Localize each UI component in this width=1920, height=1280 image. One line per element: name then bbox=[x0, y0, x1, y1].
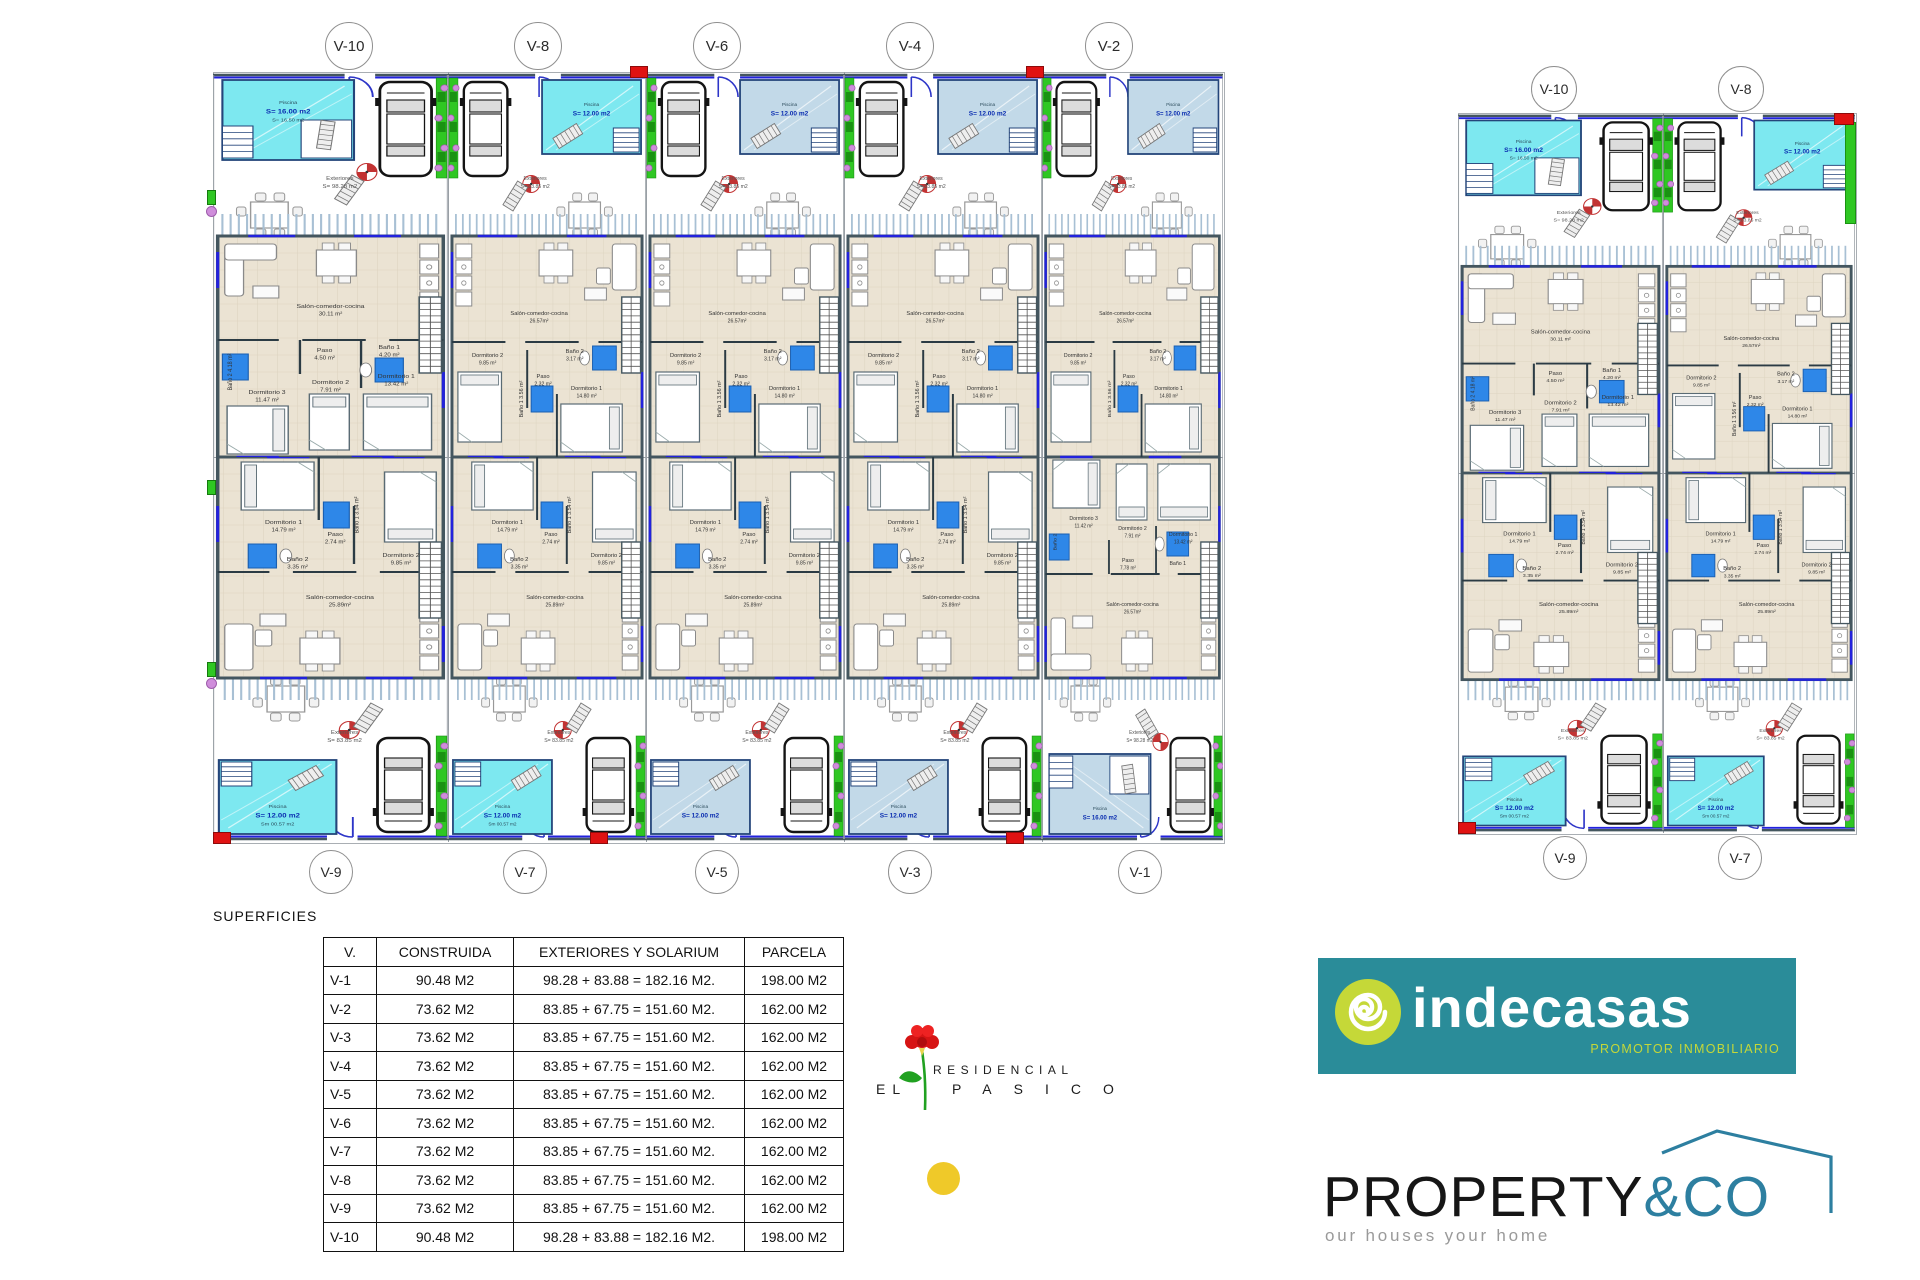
svg-text:Dormitorio 2: Dormitorio 2 bbox=[1686, 376, 1716, 382]
unit-plan-V-10: Salón-comedor-cocina30.11 m²Paso4.50 m²B… bbox=[213, 72, 448, 457]
col-header: PARCELA bbox=[745, 938, 844, 967]
unit-label-V-3: V-3 bbox=[888, 850, 932, 894]
svg-text:Paso: Paso bbox=[734, 374, 747, 380]
indecasas-spiral-icon bbox=[1332, 976, 1404, 1048]
table-cell: 83.85 + 67.75 = 151.60 M2. bbox=[514, 1137, 745, 1166]
svg-text:3.35 m²: 3.35 m² bbox=[287, 565, 308, 570]
svg-text:S= 12.00 m2: S= 12.00 m2 bbox=[255, 811, 300, 819]
svg-text:26.57m²: 26.57m² bbox=[1742, 343, 1761, 349]
svg-text:25.89m²: 25.89m² bbox=[546, 602, 565, 608]
svg-text:4.50 m²: 4.50 m² bbox=[314, 356, 335, 361]
svg-text:Baño 2: Baño 2 bbox=[1522, 566, 1541, 572]
table-cell: 98.28 + 83.88 = 182.16 M2. bbox=[514, 1223, 745, 1252]
table-cell: V-1 bbox=[324, 966, 377, 995]
table-cell: 162.00 M2 bbox=[745, 1194, 844, 1223]
svg-text:Baño 1 3.54 m²: Baño 1 3.54 m² bbox=[567, 496, 573, 533]
svg-text:Paso: Paso bbox=[536, 374, 549, 380]
table-cell: 73.62 M2 bbox=[377, 1194, 514, 1223]
table-row: V-473.62 M283.85 + 67.75 = 151.60 M2.162… bbox=[324, 1052, 844, 1081]
svg-text:Dormitorio 2: Dormitorio 2 bbox=[1064, 353, 1093, 359]
table-cell: 73.62 M2 bbox=[377, 1052, 514, 1081]
svg-text:S= 83.85 m2: S= 83.85 m2 bbox=[742, 738, 771, 744]
table-cell: 198.00 M2 bbox=[745, 1223, 844, 1252]
svg-text:Paso: Paso bbox=[1558, 543, 1572, 549]
svg-text:Piscina: Piscina bbox=[495, 804, 511, 810]
svg-text:S= 12.00 m2: S= 12.00 m2 bbox=[969, 110, 1007, 117]
table-cell: 83.85 + 67.75 = 151.60 M2. bbox=[514, 1023, 745, 1052]
svg-text:Dormitorio 2: Dormitorio 2 bbox=[789, 553, 820, 559]
table-cell: 162.00 M2 bbox=[745, 1052, 844, 1081]
table-cell: V-9 bbox=[324, 1194, 377, 1223]
property-co-logo: PROPERTY&CO our houses your home bbox=[1323, 1160, 1843, 1250]
svg-text:Paso: Paso bbox=[1122, 558, 1134, 564]
svg-text:Piscina: Piscina bbox=[1166, 102, 1180, 107]
svg-text:Dormitorio 1: Dormitorio 1 bbox=[571, 386, 602, 392]
svg-text:9.85 m²: 9.85 m² bbox=[796, 560, 814, 566]
table-cell: 162.00 M2 bbox=[745, 995, 844, 1024]
svg-text:3.35 m²: 3.35 m² bbox=[1724, 573, 1741, 579]
svg-text:Salón-comedor-cocina: Salón-comedor-cocina bbox=[708, 311, 766, 317]
svg-text:9.85 m²: 9.85 m² bbox=[1613, 570, 1631, 576]
table-cell: 83.85 + 67.75 = 151.60 M2. bbox=[514, 1080, 745, 1109]
svg-text:Piscina: Piscina bbox=[1506, 797, 1522, 802]
table-row: V-190.48 M298.28 + 83.88 = 182.16 M2.198… bbox=[324, 966, 844, 995]
svg-text:S= 83.85 m2: S= 83.85 m2 bbox=[544, 738, 573, 744]
svg-text:Exteriores: Exteriores bbox=[1736, 210, 1759, 216]
svg-text:Dormitorio 2: Dormitorio 2 bbox=[1544, 401, 1576, 407]
svg-text:S= 12.00 m2: S= 12.00 m2 bbox=[1698, 805, 1735, 812]
svg-text:Baño 1 3.56 m²: Baño 1 3.56 m² bbox=[717, 380, 723, 417]
unit-label-V-8: V-8 bbox=[1718, 66, 1764, 112]
svg-text:Dormitorio 2: Dormitorio 2 bbox=[1118, 526, 1147, 532]
svg-text:Dormitorio 3: Dormitorio 3 bbox=[1069, 516, 1098, 522]
svg-text:4.20 m²: 4.20 m² bbox=[379, 353, 400, 358]
svg-text:S= 16.00 m2: S= 16.00 m2 bbox=[266, 107, 311, 115]
svg-text:13.42 m²: 13.42 m² bbox=[1607, 402, 1628, 408]
svg-text:Paso: Paso bbox=[1749, 395, 1762, 401]
svg-text:Baño 1: Baño 1 bbox=[378, 344, 400, 350]
svg-text:9.85 m²: 9.85 m² bbox=[994, 560, 1012, 566]
svg-text:25.89m²: 25.89m² bbox=[942, 602, 961, 608]
table-row: V-773.62 M283.85 + 67.75 = 151.60 M2.162… bbox=[324, 1137, 844, 1166]
svg-text:Piscina: Piscina bbox=[584, 102, 600, 108]
svg-text:Baño 1 3.54 m²: Baño 1 3.54 m² bbox=[354, 497, 360, 534]
unit-plan-V-7: Salón-comedor-cocina25.89m²Paso2.74 m²Ba… bbox=[1663, 473, 1855, 833]
table-cell: 90.48 M2 bbox=[377, 1223, 514, 1252]
table-cell: 73.62 M2 bbox=[377, 1137, 514, 1166]
unit-label-V-5: V-5 bbox=[695, 850, 739, 894]
svg-text:2.74 m²: 2.74 m² bbox=[740, 539, 758, 545]
hedge-tick bbox=[207, 662, 216, 677]
svg-text:S= 83.85 m2: S= 83.85 m2 bbox=[327, 738, 362, 743]
svg-text:Baño 1 3.56 m²: Baño 1 3.56 m² bbox=[1732, 401, 1738, 436]
svg-text:Salón-comedor-cocina: Salón-comedor-cocina bbox=[510, 311, 568, 317]
svg-text:Dormitorio 2: Dormitorio 2 bbox=[670, 353, 701, 359]
svg-text:2.74 m²: 2.74 m² bbox=[938, 539, 956, 545]
survey-marker bbox=[1458, 822, 1476, 834]
svg-text:Exteriores: Exteriores bbox=[920, 176, 944, 182]
svg-text:Dormitorio 1: Dormitorio 1 bbox=[1154, 386, 1183, 392]
table-cell: 162.00 M2 bbox=[745, 1166, 844, 1195]
unit-plan-V-7: Salón-comedor-cocina25.89m²Paso2.74 m²Ba… bbox=[448, 457, 646, 842]
el-pasico-pasico: PASICO bbox=[952, 1081, 1136, 1097]
table-cell: 162.00 M2 bbox=[745, 1023, 844, 1052]
svg-text:S= 83.85 m2: S= 83.85 m2 bbox=[1108, 184, 1135, 190]
svg-text:Baño 2: Baño 2 bbox=[962, 349, 980, 355]
svg-text:14.79 m²: 14.79 m² bbox=[1509, 539, 1530, 545]
unit-plan-V-3: Salón-comedor-cocina25.89m²Paso2.74 m²Ba… bbox=[844, 457, 1042, 842]
svg-text:2.32 m²: 2.32 m² bbox=[534, 381, 552, 387]
svg-text:9.85 m²: 9.85 m² bbox=[1070, 360, 1086, 366]
svg-text:9.85 m²: 9.85 m² bbox=[479, 360, 497, 366]
table-cell: 73.62 M2 bbox=[377, 1109, 514, 1138]
svg-text:2.74 m²: 2.74 m² bbox=[325, 540, 346, 545]
svg-text:7.91 m²: 7.91 m² bbox=[320, 388, 341, 393]
svg-text:9.85 m²: 9.85 m² bbox=[391, 561, 412, 566]
svg-text:Paso: Paso bbox=[317, 347, 333, 353]
svg-text:2.32 m²: 2.32 m² bbox=[1121, 381, 1137, 387]
svg-text:2.32 m²: 2.32 m² bbox=[930, 381, 948, 387]
svg-text:Sm 00.57 m2: Sm 00.57 m2 bbox=[488, 821, 517, 827]
svg-text:Sm 00.57 m2: Sm 00.57 m2 bbox=[1500, 814, 1530, 819]
table-cell: V-6 bbox=[324, 1109, 377, 1138]
svg-text:Exteriores: Exteriores bbox=[722, 176, 746, 182]
table-row: V-673.62 M283.85 + 67.75 = 151.60 M2.162… bbox=[324, 1109, 844, 1138]
svg-text:S= 98.28 m2: S= 98.28 m2 bbox=[1554, 218, 1584, 224]
svg-text:S= 16.00 m2: S= 16.00 m2 bbox=[1504, 147, 1543, 154]
unit-label-V-6: V-6 bbox=[693, 22, 741, 70]
svg-text:Dormitorio 1: Dormitorio 1 bbox=[1503, 532, 1535, 538]
svg-text:9.85 m²: 9.85 m² bbox=[1808, 570, 1825, 576]
svg-text:Paso: Paso bbox=[940, 532, 953, 538]
svg-text:Dormitorio 1: Dormitorio 1 bbox=[1782, 406, 1812, 412]
svg-text:S= 12.00 m2: S= 12.00 m2 bbox=[771, 110, 809, 117]
svg-text:Baño 1 3.54 m²: Baño 1 3.54 m² bbox=[1581, 510, 1587, 545]
svg-text:Exteriores: Exteriores bbox=[1111, 176, 1133, 182]
svg-text:3.17 m²: 3.17 m² bbox=[1777, 379, 1794, 385]
svg-text:Baño 1 3.56 m²: Baño 1 3.56 m² bbox=[519, 380, 525, 417]
superficies-heading: SUPERFICIES bbox=[213, 908, 317, 924]
svg-text:Exteriores: Exteriores bbox=[547, 730, 571, 736]
unit-plan-V-2: Salón-comedor-cocina26.57m²Paso2.32 m²Ba… bbox=[1042, 72, 1223, 457]
svg-text:Baño 2: Baño 2 bbox=[1053, 533, 1059, 550]
svg-text:Dormitorio 2: Dormitorio 2 bbox=[591, 553, 622, 559]
table-row: V-973.62 M283.85 + 67.75 = 151.60 M2.162… bbox=[324, 1194, 844, 1223]
svg-text:Piscina: Piscina bbox=[1093, 806, 1107, 811]
table-cell: 162.00 M2 bbox=[745, 1080, 844, 1109]
unit-plan-V-5: Salón-comedor-cocina25.89m²Paso2.74 m²Ba… bbox=[646, 457, 844, 842]
svg-text:2.32 m²: 2.32 m² bbox=[732, 381, 750, 387]
svg-text:S= 98.28 m2: S= 98.28 m2 bbox=[1126, 738, 1153, 744]
svg-text:30.11 m²: 30.11 m² bbox=[319, 312, 343, 317]
survey-marker bbox=[590, 832, 608, 844]
hedge-tick bbox=[207, 190, 216, 205]
svg-text:Dormitorio 3: Dormitorio 3 bbox=[249, 389, 287, 395]
survey-marker bbox=[630, 66, 648, 78]
svg-text:7.78 m²: 7.78 m² bbox=[1120, 565, 1136, 571]
svg-text:Baño 2 4.18 m²: Baño 2 4.18 m² bbox=[227, 354, 233, 391]
svg-text:S= 12.00 m2: S= 12.00 m2 bbox=[573, 110, 611, 117]
svg-text:25.89m²: 25.89m² bbox=[744, 602, 763, 608]
table-cell: V-10 bbox=[324, 1223, 377, 1252]
table-cell: 98.28 + 83.88 = 182.16 M2. bbox=[514, 966, 745, 995]
unit-plan-V-9: Salón-comedor-cocina25.89m²Paso2.74 m²Ba… bbox=[1458, 473, 1663, 833]
svg-text:S= 83.85 m2: S= 83.85 m2 bbox=[916, 184, 945, 190]
svg-text:S= 83.85 m2: S= 83.85 m2 bbox=[1733, 218, 1762, 224]
svg-text:Salón-comedor-cocina: Salón-comedor-cocina bbox=[1531, 330, 1591, 336]
table-row: V-373.62 M283.85 + 67.75 = 151.60 M2.162… bbox=[324, 1023, 844, 1052]
svg-text:Dormitorio 1: Dormitorio 1 bbox=[967, 386, 998, 392]
svg-text:Baño 1: Baño 1 bbox=[1602, 368, 1621, 374]
svg-text:S= 16.50 m2: S= 16.50 m2 bbox=[272, 118, 304, 123]
col-header: V. bbox=[324, 938, 377, 967]
svg-text:Salón-comedor-cocina: Salón-comedor-cocina bbox=[1099, 311, 1152, 317]
svg-text:Baño 2: Baño 2 bbox=[708, 557, 726, 563]
svg-text:Salón-comedor-cocina: Salón-comedor-cocina bbox=[1739, 602, 1796, 608]
table-row: V-1090.48 M298.28 + 83.88 = 182.16 M2.19… bbox=[324, 1223, 844, 1252]
svg-text:Exteriores: Exteriores bbox=[524, 176, 548, 182]
svg-text:4.20 m²: 4.20 m² bbox=[1603, 375, 1621, 381]
unit-label-V-10: V-10 bbox=[1531, 66, 1577, 112]
unit-label-V-8: V-8 bbox=[514, 22, 562, 70]
svg-text:3.35 m²: 3.35 m² bbox=[907, 564, 925, 570]
unit-label-V-4: V-4 bbox=[886, 22, 934, 70]
svg-text:7.91 m²: 7.91 m² bbox=[1551, 408, 1569, 414]
residencial-label: RESIDENCIAL bbox=[933, 1063, 1074, 1077]
svg-text:14.79 m²: 14.79 m² bbox=[497, 527, 518, 533]
svg-text:Exteriores: Exteriores bbox=[943, 730, 967, 736]
svg-text:25.89m²: 25.89m² bbox=[1559, 609, 1579, 615]
svg-text:S= 12.00 m2: S= 12.00 m2 bbox=[1784, 149, 1821, 156]
svg-text:26.57m²: 26.57m² bbox=[926, 318, 945, 324]
svg-text:Baño 1 3.54 m²: Baño 1 3.54 m² bbox=[963, 496, 969, 533]
svg-text:Paso: Paso bbox=[327, 531, 343, 537]
svg-text:Piscina: Piscina bbox=[693, 804, 709, 810]
table-cell: 83.85 + 67.75 = 151.60 M2. bbox=[514, 1166, 745, 1195]
svg-text:9.85 m²: 9.85 m² bbox=[1693, 383, 1710, 389]
svg-text:11.42 m²: 11.42 m² bbox=[1075, 523, 1093, 529]
svg-text:11.47 m²: 11.47 m² bbox=[255, 398, 279, 403]
svg-text:14.80 m²: 14.80 m² bbox=[1788, 413, 1808, 419]
table-cell: V-4 bbox=[324, 1052, 377, 1081]
svg-text:9.85 m²: 9.85 m² bbox=[598, 560, 616, 566]
table-cell: 83.85 + 67.75 = 151.60 M2. bbox=[514, 1194, 745, 1223]
unit-plan-V-4: Salón-comedor-cocina26.57m²Paso2.32 m²Ba… bbox=[844, 72, 1042, 457]
svg-text:Paso: Paso bbox=[1123, 374, 1135, 380]
table-cell: 73.62 M2 bbox=[377, 1166, 514, 1195]
svg-text:3.17 m²: 3.17 m² bbox=[962, 356, 980, 362]
svg-text:Paso: Paso bbox=[544, 532, 557, 538]
svg-text:26.57m²: 26.57m² bbox=[1117, 318, 1135, 324]
svg-text:S= 83.85 m2: S= 83.85 m2 bbox=[1756, 736, 1785, 742]
svg-text:2.74 m²: 2.74 m² bbox=[1556, 550, 1574, 556]
svg-text:14.79 m²: 14.79 m² bbox=[893, 527, 914, 533]
table-cell: 162.00 M2 bbox=[745, 1137, 844, 1166]
svg-text:25.89m²: 25.89m² bbox=[1758, 609, 1777, 615]
svg-text:S= 16.00 m2: S= 16.00 m2 bbox=[1083, 814, 1118, 821]
svg-text:Paso: Paso bbox=[742, 532, 755, 538]
svg-text:Baño 2: Baño 2 bbox=[906, 557, 924, 563]
table-cell: 83.85 + 67.75 = 151.60 M2. bbox=[514, 1052, 745, 1081]
unit-plan-V-9: Salón-comedor-cocina25.89m²Paso2.74 m²Ba… bbox=[213, 457, 448, 842]
table-cell: 73.62 M2 bbox=[377, 995, 514, 1024]
table-cell: 83.85 + 67.75 = 151.60 M2. bbox=[514, 1109, 745, 1138]
svg-text:S= 12.00 m2: S= 12.00 m2 bbox=[880, 812, 918, 819]
svg-text:Paso: Paso bbox=[1757, 543, 1770, 549]
svg-text:Salón-comedor-cocina: Salón-comedor-cocina bbox=[724, 595, 782, 601]
svg-text:Dormitorio 3: Dormitorio 3 bbox=[1489, 410, 1521, 416]
svg-text:Baño 1 3.54 m²: Baño 1 3.54 m² bbox=[765, 496, 771, 533]
indecasas-logo: indecasas PROMOTOR INMOBILIARIO bbox=[1318, 958, 1796, 1074]
hedge-tick bbox=[207, 480, 216, 495]
svg-text:3.35 m²: 3.35 m² bbox=[709, 564, 727, 570]
svg-text:Piscina: Piscina bbox=[891, 804, 907, 810]
svg-text:Exteriores: Exteriores bbox=[1759, 728, 1782, 734]
svg-text:S= 83.85 m2: S= 83.85 m2 bbox=[940, 738, 969, 744]
svg-text:S= 12.00 m2: S= 12.00 m2 bbox=[1495, 805, 1534, 812]
svg-text:25.89m²: 25.89m² bbox=[329, 603, 351, 608]
svg-text:2.74 m²: 2.74 m² bbox=[1754, 550, 1771, 556]
svg-text:Baño 2: Baño 2 bbox=[1777, 372, 1795, 378]
unit-label-V-2: V-2 bbox=[1085, 22, 1133, 70]
svg-text:S= 98.28 m2: S= 98.28 m2 bbox=[323, 184, 358, 189]
svg-text:Salón-comedor-cocina: Salón-comedor-cocina bbox=[526, 595, 584, 601]
svg-text:Piscina: Piscina bbox=[1708, 797, 1723, 802]
svg-text:3.35 m²: 3.35 m² bbox=[1523, 573, 1541, 579]
table-cell: 73.62 M2 bbox=[377, 1080, 514, 1109]
svg-text:Dormitorio 2: Dormitorio 2 bbox=[868, 353, 899, 359]
table-cell: V-8 bbox=[324, 1166, 377, 1195]
svg-text:Dormitorio 2: Dormitorio 2 bbox=[312, 379, 350, 385]
property-co-tagline: our houses your home bbox=[1325, 1226, 1550, 1246]
svg-text:Salón-comedor-cocina: Salón-comedor-cocina bbox=[1539, 602, 1599, 608]
svg-text:S= 12.00 m2: S= 12.00 m2 bbox=[484, 812, 522, 819]
flower-dot bbox=[206, 206, 217, 217]
survey-marker bbox=[1006, 832, 1024, 844]
svg-text:2.32 m²: 2.32 m² bbox=[1747, 402, 1764, 408]
svg-text:Paso: Paso bbox=[932, 374, 945, 380]
svg-text:S= 83.85 m2: S= 83.85 m2 bbox=[520, 184, 549, 190]
table-cell: V-3 bbox=[324, 1023, 377, 1052]
svg-text:Salón-comedor-cocina: Salón-comedor-cocina bbox=[296, 303, 365, 309]
svg-text:S= 12.00 m2: S= 12.00 m2 bbox=[682, 812, 720, 819]
table-row: V-573.62 M283.85 + 67.75 = 151.60 M2.162… bbox=[324, 1080, 844, 1109]
el-pasico-el: EL bbox=[876, 1081, 907, 1097]
svg-text:9.85 m²: 9.85 m² bbox=[875, 360, 893, 366]
svg-text:Piscina: Piscina bbox=[782, 102, 798, 108]
svg-text:14.79 m²: 14.79 m² bbox=[1711, 539, 1731, 545]
svg-text:Dormitorio 1: Dormitorio 1 bbox=[769, 386, 800, 392]
svg-text:11.47 m²: 11.47 m² bbox=[1495, 417, 1516, 423]
unit-label-V-7: V-7 bbox=[1718, 836, 1762, 880]
svg-text:30.11 m²: 30.11 m² bbox=[1550, 337, 1571, 343]
svg-text:4.50 m²: 4.50 m² bbox=[1546, 378, 1564, 384]
svg-text:Piscina: Piscina bbox=[1795, 141, 1810, 146]
svg-text:Exteriores: Exteriores bbox=[1129, 730, 1151, 736]
svg-text:Salón-comedor-cocina: Salón-comedor-cocina bbox=[306, 594, 375, 600]
svg-text:Baño 2: Baño 2 bbox=[566, 349, 584, 355]
svg-text:Baño 2: Baño 2 bbox=[1150, 349, 1167, 355]
svg-text:Exteriores: Exteriores bbox=[1557, 210, 1581, 216]
svg-text:Baño 1 3.54 m²: Baño 1 3.54 m² bbox=[1778, 510, 1784, 545]
col-header: CONSTRUIDA bbox=[377, 938, 514, 967]
svg-text:Dormitorio 1: Dormitorio 1 bbox=[492, 520, 523, 526]
svg-text:14.80 m²: 14.80 m² bbox=[576, 393, 597, 399]
unit-plan-V-10: Salón-comedor-cocina30.11 m²Paso4.50 m²B… bbox=[1458, 113, 1663, 473]
svg-text:26.57m²: 26.57m² bbox=[728, 318, 747, 324]
svg-text:Dormitorio 1: Dormitorio 1 bbox=[1169, 532, 1198, 538]
svg-text:S= 12.00 m2: S= 12.00 m2 bbox=[1156, 110, 1191, 117]
svg-text:14.80 m²: 14.80 m² bbox=[1159, 393, 1178, 399]
unit-label-V-9: V-9 bbox=[309, 850, 353, 894]
svg-text:26.57m²: 26.57m² bbox=[1124, 609, 1142, 615]
svg-text:Dormitorio 1: Dormitorio 1 bbox=[378, 373, 416, 379]
indecasas-tagline: PROMOTOR INMOBILIARIO bbox=[1590, 1042, 1780, 1056]
svg-text:3.35 m²: 3.35 m² bbox=[511, 564, 529, 570]
svg-text:Piscina: Piscina bbox=[269, 804, 287, 809]
svg-text:3.17 m²: 3.17 m² bbox=[566, 356, 584, 362]
unit-plan-V-6: Salón-comedor-cocina26.57m²Paso2.32 m²Ba… bbox=[646, 72, 844, 457]
table-row: V-873.62 M283.85 + 67.75 = 151.60 M2.162… bbox=[324, 1166, 844, 1195]
svg-text:7.91 m²: 7.91 m² bbox=[1125, 533, 1141, 539]
svg-text:Baño 1: Baño 1 bbox=[1169, 561, 1186, 567]
svg-text:Dormitorio 1: Dormitorio 1 bbox=[888, 520, 919, 526]
svg-text:Exteriores: Exteriores bbox=[745, 730, 769, 736]
svg-text:Piscina: Piscina bbox=[1516, 139, 1532, 144]
svg-text:3.17 m²: 3.17 m² bbox=[1150, 356, 1166, 362]
indecasas-name: indecasas bbox=[1412, 975, 1692, 1040]
svg-text:Dormitorio 1: Dormitorio 1 bbox=[1705, 532, 1735, 538]
survey-marker bbox=[1026, 66, 1044, 78]
svg-text:Piscina: Piscina bbox=[980, 102, 996, 108]
col-header: EXTERIORES Y SOLARIUM bbox=[514, 938, 745, 967]
superficies-table: V.CONSTRUIDAEXTERIORES Y SOLARIUMPARCELA… bbox=[323, 937, 844, 1252]
floor-plan-sheet: Salón-comedor-cocina30.11 m²Paso4.50 m²B… bbox=[0, 0, 1920, 1280]
svg-text:Baño 2: Baño 2 bbox=[1723, 566, 1741, 572]
property-co-name: PROPERTY&CO bbox=[1323, 1164, 1770, 1230]
svg-text:Dormitorio 2: Dormitorio 2 bbox=[1606, 563, 1638, 569]
svg-text:14.80 m²: 14.80 m² bbox=[972, 393, 993, 399]
table-cell: 198.00 M2 bbox=[745, 966, 844, 995]
svg-text:Baño 2: Baño 2 bbox=[287, 556, 309, 562]
svg-text:14.80 m²: 14.80 m² bbox=[774, 393, 795, 399]
svg-text:Baño 2: Baño 2 bbox=[764, 349, 782, 355]
svg-text:Dormitorio 1: Dormitorio 1 bbox=[265, 519, 303, 525]
svg-text:Baño 2: Baño 2 bbox=[510, 557, 528, 563]
svg-text:Baño 1 3.56 m²: Baño 1 3.56 m² bbox=[915, 380, 921, 417]
hedge-strip bbox=[1845, 122, 1856, 224]
svg-text:S= 83.85 m2: S= 83.85 m2 bbox=[718, 184, 747, 190]
svg-text:Sm 00.57 m2: Sm 00.57 m2 bbox=[261, 822, 295, 827]
table-cell: 83.85 + 67.75 = 151.60 M2. bbox=[514, 995, 745, 1024]
unit-plan-V-8: Salón-comedor-cocina26.57m²Paso2.32 m²Ba… bbox=[1663, 113, 1855, 473]
svg-text:S= 83.85 m2: S= 83.85 m2 bbox=[1558, 736, 1588, 742]
flower-dot bbox=[206, 678, 217, 689]
survey-marker bbox=[1834, 113, 1854, 125]
svg-text:14.79 m²: 14.79 m² bbox=[271, 528, 295, 533]
unit-label-V-10: V-10 bbox=[325, 22, 373, 70]
unit-plan-V-8: Salón-comedor-cocina26.57m²Paso2.32 m²Ba… bbox=[448, 72, 646, 457]
svg-text:Salón-comedor-cocina: Salón-comedor-cocina bbox=[922, 595, 980, 601]
table-row: V-273.62 M283.85 + 67.75 = 151.60 M2.162… bbox=[324, 995, 844, 1024]
svg-text:26.57m²: 26.57m² bbox=[530, 318, 549, 324]
svg-text:14.79 m²: 14.79 m² bbox=[695, 527, 716, 533]
svg-text:Dormitorio 2: Dormitorio 2 bbox=[472, 353, 503, 359]
unit-plan-V-1: Salón-comedor-cocina26.57m²Paso7.78 m²Ba… bbox=[1042, 457, 1223, 842]
svg-text:Dormitorio 2: Dormitorio 2 bbox=[1801, 563, 1831, 569]
unit-label-V-7: V-7 bbox=[503, 850, 547, 894]
svg-text:Dormitorio 2: Dormitorio 2 bbox=[382, 552, 420, 558]
